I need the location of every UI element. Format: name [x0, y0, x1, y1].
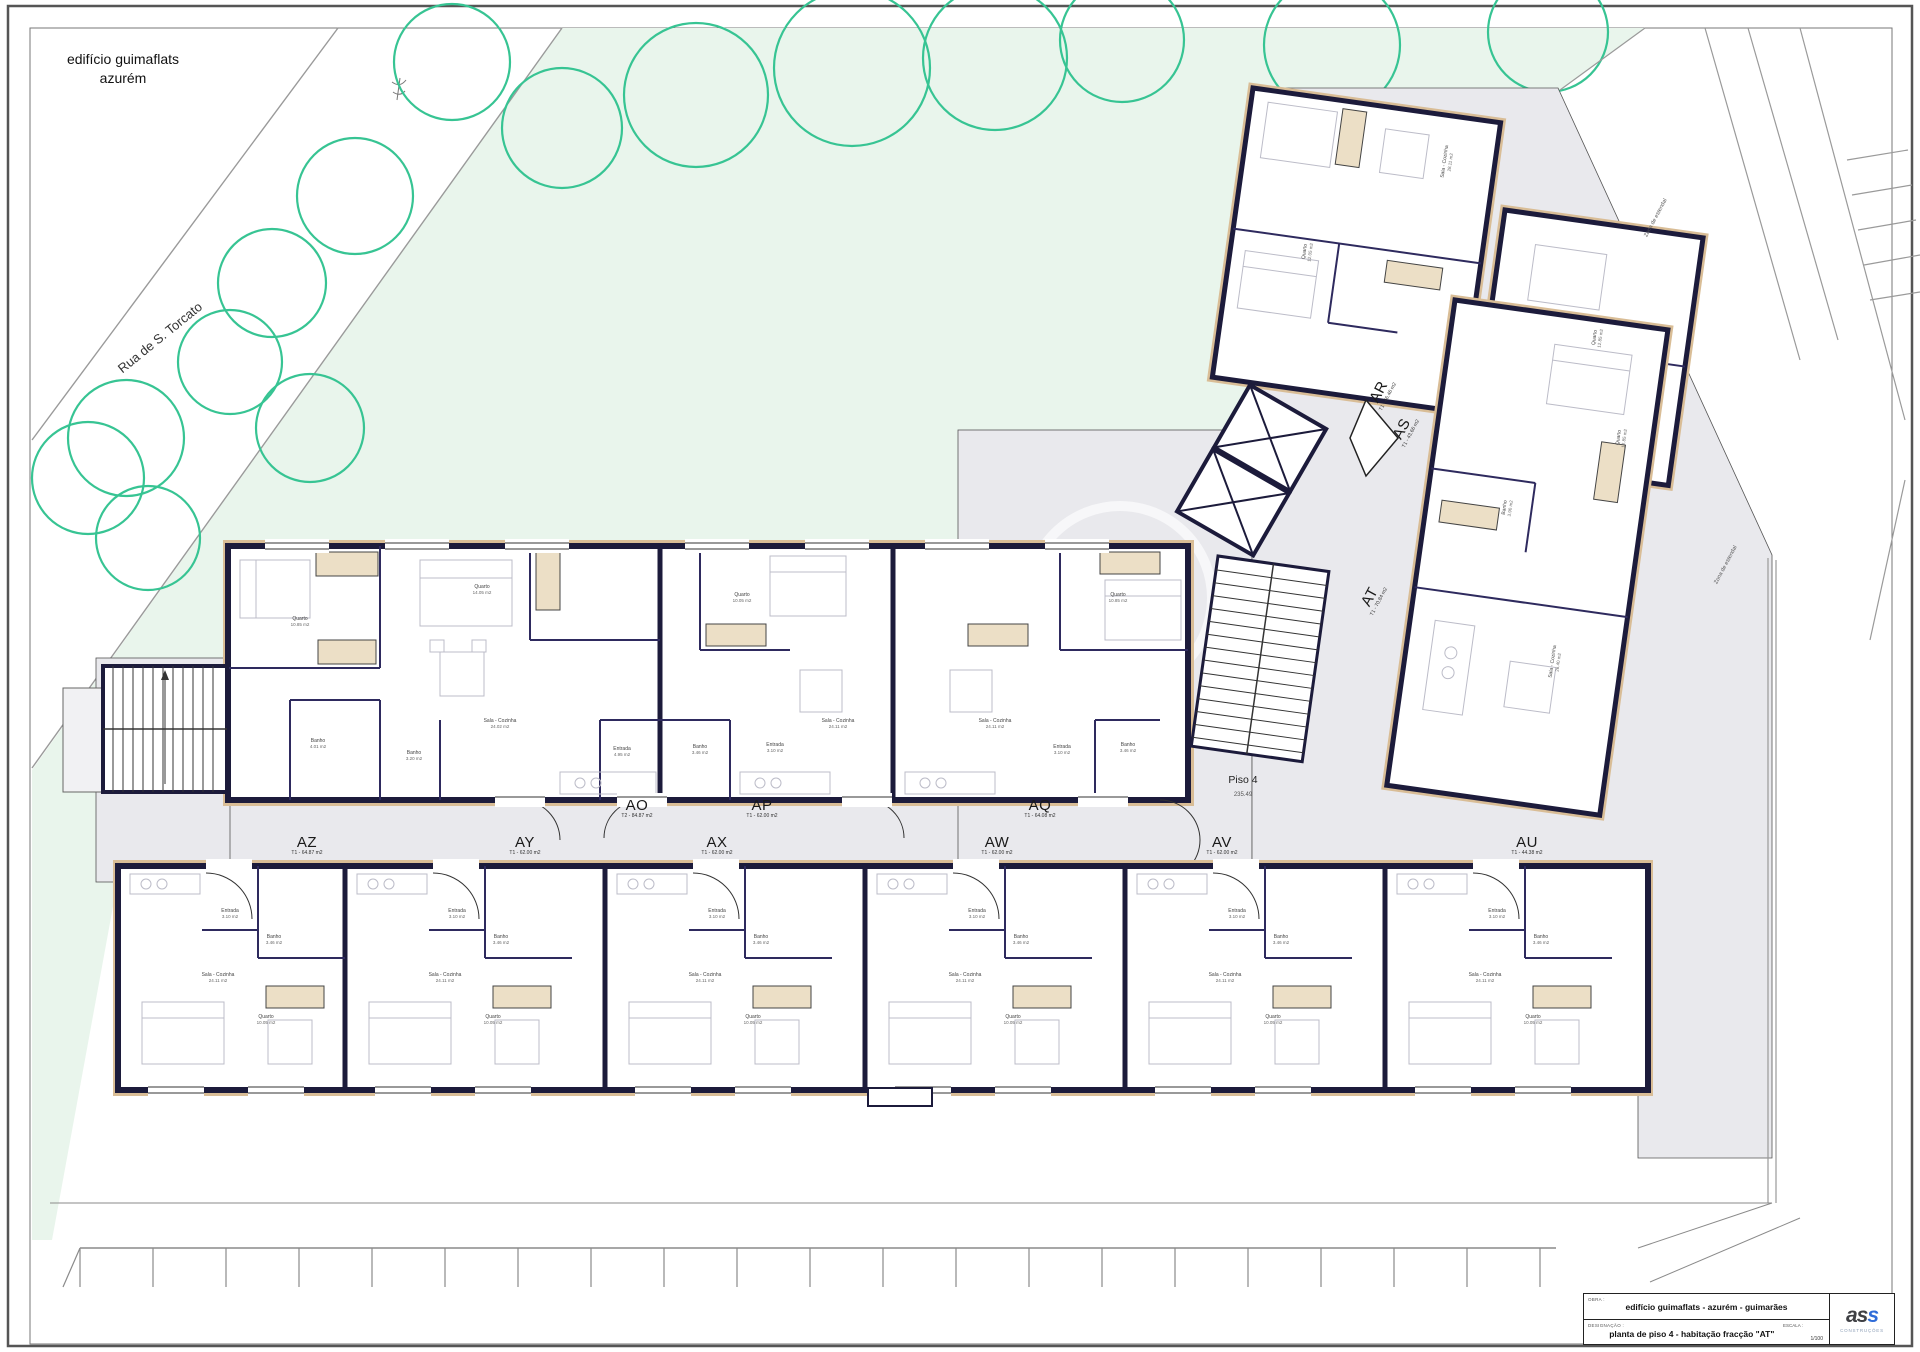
- room-label: Banho3.46 m2: [266, 935, 282, 945]
- unit-label-av: AVT1 - 62.00 m2: [1206, 834, 1237, 856]
- title-block-fields: OBRA : edifício guimaflats - azurém - gu…: [1584, 1294, 1830, 1344]
- room-label: Banho3.46 m2: [1533, 935, 1549, 945]
- room-label: Sala - Cozinha24.11 m2: [949, 973, 982, 983]
- room-label: Sala - Cozinha24.11 m2: [822, 719, 855, 729]
- room-area: 24.11 m2: [429, 978, 462, 983]
- company-logo: ass CONSTRUÇÕES: [1830, 1294, 1894, 1344]
- room-area: 24.11 m2: [822, 724, 855, 729]
- room-label: Quarto10.05 m2: [257, 1015, 276, 1025]
- room-area: 4.01 m2: [310, 744, 326, 749]
- project-title: edifício guimaflats azurém: [48, 50, 198, 88]
- room-label: Entrada3.10 m2: [1228, 909, 1246, 919]
- unit-label-ax: AXT1 - 62.00 m2: [701, 834, 732, 856]
- designacao-value: planta de piso 4 - habitação fracção "AT…: [1609, 1329, 1774, 1339]
- title-block-designacao-row: DESIGNAÇÃO : planta de piso 4 - habitaçã…: [1584, 1320, 1829, 1345]
- unit-area: T1 - 64.08 m2: [1024, 813, 1055, 819]
- logo-dark-part: as: [1846, 1304, 1867, 1327]
- unit-code: AQ: [1024, 797, 1055, 814]
- room-area: 14.05 m2: [473, 590, 492, 595]
- room-area: 3.46 m2: [1120, 748, 1136, 753]
- room-area: 10.05 m2: [1524, 1020, 1543, 1025]
- obra-value: edifício guimaflats - azurém - guimarães: [1625, 1302, 1787, 1312]
- room-area: 10.05 m2: [733, 598, 752, 603]
- room-label: Banho3.46 m2: [1013, 935, 1029, 945]
- unit-area: T2 - 84.87 m2: [621, 813, 652, 819]
- room-area: 3.10 m2: [1488, 914, 1506, 919]
- unit-area: T1 - 44.38 m2: [1511, 850, 1542, 856]
- room-area: 24.02 m2: [484, 724, 517, 729]
- bottom-building: [113, 859, 1653, 1106]
- unit-label-az: AZT1 - 64.87 m2: [291, 834, 322, 856]
- unit-code: AY: [509, 834, 540, 851]
- unit-area: T1 - 62.00 m2: [746, 813, 777, 819]
- room-area: 3.46 m2: [1013, 940, 1029, 945]
- obra-label: OBRA :: [1588, 1297, 1605, 1302]
- room-area: 3.46 m2: [1533, 940, 1549, 945]
- unit-label-ao: AOT2 - 84.87 m2: [621, 797, 652, 819]
- room-area: 4.95 m2: [613, 752, 631, 757]
- drawing-sheet: edifício guimaflats azurém Rua de S. Tor…: [0, 0, 1920, 1352]
- room-label: Entrada3.10 m2: [448, 909, 466, 919]
- room-area: 3.46 m2: [692, 750, 708, 755]
- unit-area: T1 - 62.00 m2: [981, 850, 1012, 856]
- room-area: 10.05 m2: [257, 1020, 276, 1025]
- room-area: 24.11 m2: [202, 978, 235, 983]
- room-label: Entrada3.10 m2: [221, 909, 239, 919]
- room-label: Sala - Cozinha24.11 m2: [1469, 973, 1502, 983]
- room-area: 3.10 m2: [708, 914, 726, 919]
- room-area: 24.11 m2: [979, 724, 1012, 729]
- room-area: 3.46 m2: [753, 940, 769, 945]
- room-label: Sala - Cozinha24.02 m2: [484, 719, 517, 729]
- room-area: 24.11 m2: [689, 978, 722, 983]
- unit-area: T1 - 64.87 m2: [291, 850, 322, 856]
- escala-label: ESCALA :: [1783, 1323, 1803, 1328]
- room-label: Quarto10.05 m2: [744, 1015, 763, 1025]
- room-label: Quarto10.05 m2: [1524, 1015, 1543, 1025]
- escala-value: 1/100: [1810, 1336, 1823, 1342]
- room-label: Banho3.46 m2: [753, 935, 769, 945]
- floor-plan-drawing: [0, 0, 1920, 1352]
- room-label: Quarto10.85 m2: [291, 617, 310, 627]
- unit-label-au: AUT1 - 44.38 m2: [1511, 834, 1542, 856]
- room-label: Entrada3.10 m2: [968, 909, 986, 919]
- room-label: Banho4.01 m2: [310, 739, 326, 749]
- unit-label-ap: APT1 - 62.00 m2: [746, 797, 777, 819]
- room-label: Quarto10.05 m2: [484, 1015, 503, 1025]
- unit-code: AP: [746, 797, 777, 814]
- room-area: 10.05 m2: [1264, 1020, 1283, 1025]
- unit-code: AX: [701, 834, 732, 851]
- room-area: 3.20 m2: [406, 756, 422, 761]
- unit-code: AZ: [291, 834, 322, 851]
- room-area: 3.46 m2: [493, 940, 509, 945]
- floor-label: Piso 4: [1228, 774, 1257, 786]
- designacao-label: DESIGNAÇÃO :: [1588, 1323, 1624, 1328]
- room-area: 3.10 m2: [448, 914, 466, 919]
- title-block-obra-row: OBRA : edifício guimaflats - azurém - gu…: [1584, 1294, 1829, 1320]
- room-label: Banho3.46 m2: [1120, 743, 1136, 753]
- floor-area: 235.49: [1228, 792, 1257, 798]
- room-label: Quarto14.05 m2: [473, 585, 492, 595]
- room-area: 24.11 m2: [949, 978, 982, 983]
- room-label: Sala - Cozinha24.11 m2: [1209, 973, 1242, 983]
- room-area: 10.05 m2: [484, 1020, 503, 1025]
- room-area: 3.10 m2: [1228, 914, 1246, 919]
- room-area: 24.11 m2: [1209, 978, 1242, 983]
- room-area: 3.46 m2: [266, 940, 282, 945]
- unit-label-ay: AYT1 - 62.00 m2: [509, 834, 540, 856]
- room-label: Sala - Cozinha24.11 m2: [689, 973, 722, 983]
- room-area: 10.85 m2: [1109, 598, 1128, 603]
- logo-text: ass: [1846, 1305, 1878, 1326]
- room-label: Banho3.46 m2: [1273, 935, 1289, 945]
- room-label: Entrada3.10 m2: [766, 743, 784, 753]
- room-label: Banho3.46 m2: [692, 745, 708, 755]
- unit-area: T1 - 62.00 m2: [1206, 850, 1237, 856]
- room-area: 24.11 m2: [1469, 978, 1502, 983]
- room-label: Entrada3.10 m2: [1488, 909, 1506, 919]
- unit-code: AU: [1511, 834, 1542, 851]
- room-label: Quarto10.05 m2: [1264, 1015, 1283, 1025]
- unit-label-aw: AWT1 - 62.00 m2: [981, 834, 1012, 856]
- room-area: 3.10 m2: [221, 914, 239, 919]
- unit-code: AV: [1206, 834, 1237, 851]
- room-area: 10.05 m2: [1004, 1020, 1023, 1025]
- project-title-line1: edifício guimaflats: [48, 50, 198, 69]
- title-block: OBRA : edifício guimaflats - azurém - gu…: [1583, 1293, 1895, 1345]
- unit-area: T1 - 62.00 m2: [701, 850, 732, 856]
- room-area: 3.10 m2: [766, 748, 784, 753]
- room-area: 10.85 m2: [291, 622, 310, 627]
- room-label: Quarto10.05 m2: [1004, 1015, 1023, 1025]
- room-label: Banho3.46 m2: [493, 935, 509, 945]
- unit-code: AO: [621, 797, 652, 814]
- room-area: 3.10 m2: [968, 914, 986, 919]
- room-label: Quarto10.85 m2: [1109, 593, 1128, 603]
- room-area: 3.10 m2: [1053, 750, 1071, 755]
- room-label: Sala - Cozinha24.11 m2: [202, 973, 235, 983]
- floor-annotation: Piso 4 235.49: [1228, 774, 1257, 798]
- project-title-line2: azurém: [48, 69, 198, 88]
- room-label: Entrada4.95 m2: [613, 747, 631, 757]
- room-label: Entrada3.10 m2: [708, 909, 726, 919]
- room-label: Sala - Cozinha24.11 m2: [429, 973, 462, 983]
- room-label: Banho3.20 m2: [406, 751, 422, 761]
- room-area: 3.46 m2: [1273, 940, 1289, 945]
- unit-label-aq: AQT1 - 64.08 m2: [1024, 797, 1055, 819]
- room-area: 10.05 m2: [744, 1020, 763, 1025]
- room-label: Sala - Cozinha24.11 m2: [979, 719, 1012, 729]
- logo-subtitle: CONSTRUÇÕES: [1840, 1328, 1884, 1333]
- unit-code: AW: [981, 834, 1012, 851]
- room-label: Entrada3.10 m2: [1053, 745, 1071, 755]
- unit-area: T1 - 62.00 m2: [509, 850, 540, 856]
- logo-blue-part: s: [1867, 1304, 1878, 1327]
- room-label: Banho3.90 m2: [1502, 499, 1515, 517]
- room-label: Quarto10.05 m2: [733, 593, 752, 603]
